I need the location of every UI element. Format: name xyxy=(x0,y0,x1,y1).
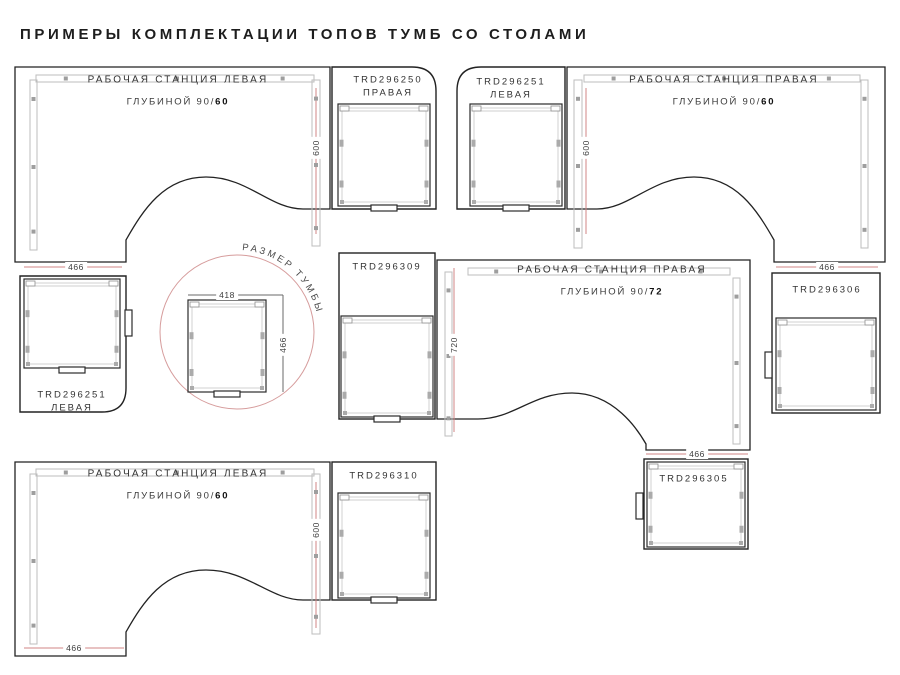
rail-bracket-mark xyxy=(576,97,580,101)
cabinet-code-trd296309: TRD296309 xyxy=(352,262,421,273)
cabinet-header-cap xyxy=(255,302,264,307)
cabinet-corner-mark xyxy=(472,200,476,204)
cabinet-top-outline xyxy=(776,318,876,410)
cabinet-hinge-mark xyxy=(740,492,744,499)
dim-600-top-left: 600 xyxy=(311,137,321,159)
rail-bracket-mark xyxy=(314,554,318,558)
cabinet-hinge-mark xyxy=(778,387,782,394)
rail-bracket-mark xyxy=(576,164,580,168)
rail-bracket-mark xyxy=(447,288,451,292)
cabinet-hinge-mark xyxy=(115,346,119,353)
cabinet-notch xyxy=(371,205,397,211)
cabinet-hinge-mark xyxy=(425,572,429,579)
cabinet-side-trd296250: ПРАВАЯ xyxy=(363,88,413,99)
cabinet-header-cap xyxy=(419,495,428,500)
rail-bracket-mark xyxy=(863,228,867,232)
cabinet-side-trd296251-left: ЛЕВАЯ xyxy=(51,403,93,414)
cabinet-top-outline xyxy=(24,279,120,368)
rail-bracket-mark xyxy=(314,615,318,619)
dim-466-top-left: 466 xyxy=(65,262,87,272)
rail-bracket-mark xyxy=(863,97,867,101)
depth-prefix: ГЛУБИНОЙ 90/ xyxy=(673,97,761,108)
page-title: ПРИМЕРЫ КОМПЛЕКТАЦИИ ТОПОВ ТУМБ СО СТОЛА… xyxy=(20,26,589,43)
depth-value: 60 xyxy=(215,491,229,502)
depth-label-top-right: ГЛУБИНОЙ 90/60 xyxy=(673,97,776,108)
cabinet-notch xyxy=(214,391,240,397)
cabinet-code-trd296251-right: TRD296251 xyxy=(476,77,545,88)
station-label-top-left: РАБОЧАЯ СТАНЦИЯ ЛЕВАЯ xyxy=(88,75,269,86)
rail-bracket-mark xyxy=(32,491,36,495)
cabinet-hinge-mark xyxy=(340,572,344,579)
cabinet-code-trd296305: TRD296305 xyxy=(659,474,728,485)
cabinet-handle-tab xyxy=(125,310,132,336)
cabinet-notch xyxy=(371,597,397,603)
cabinet-hinge-mark xyxy=(472,181,476,188)
cabinet-code-trd296251-left: TRD296251 xyxy=(37,390,106,401)
cabinet-handle-tab xyxy=(765,352,772,378)
cabinet-top-outline xyxy=(338,493,430,598)
cabinet-hinge-mark xyxy=(190,369,194,376)
dim-600-top-right: 600 xyxy=(581,137,591,159)
cabinet-code-trd296310: TRD296310 xyxy=(349,471,418,482)
cabinet-top-outline xyxy=(338,104,430,206)
cabinet-hinge-mark xyxy=(428,351,432,358)
dim-600-bottom-left: 600 xyxy=(311,519,321,541)
rail-bracket-mark xyxy=(32,230,36,234)
cabinet-notch xyxy=(374,416,400,422)
cabinet-hinge-mark xyxy=(340,181,344,188)
dim-466-top-right: 466 xyxy=(816,262,838,272)
cabinet-hinge-mark xyxy=(115,310,119,317)
cabinet-corner-mark xyxy=(739,541,743,545)
cabinet-header-cap xyxy=(778,320,787,325)
cabinet-header-cap xyxy=(340,106,349,111)
cabinet-hinge-mark xyxy=(557,181,561,188)
cabinet-hinge-mark xyxy=(343,351,347,358)
depth-label-middle-right: ГЛУБИНОЙ 90/72 xyxy=(561,287,664,298)
rail-bracket-mark xyxy=(314,226,318,230)
rail-bracket-mark xyxy=(32,97,36,101)
dim-418-cabinet-width: 418 xyxy=(216,290,238,300)
rail-bracket-mark xyxy=(494,270,498,274)
dim-466-bottom-left: 466 xyxy=(63,643,85,653)
cabinet-corner-mark xyxy=(424,200,428,204)
station-label-middle-right: РАБОЧАЯ СТАНЦИЯ ПРАВАЯ xyxy=(517,265,707,276)
cabinet-corner-mark xyxy=(343,411,347,415)
cabinet-hinge-mark xyxy=(871,387,875,394)
depth-label-top-left: ГЛУБИНОЙ 90/60 xyxy=(127,97,230,108)
rail-bracket-mark xyxy=(576,228,580,232)
rail-bracket-mark xyxy=(827,77,831,81)
cabinet-header-cap xyxy=(551,106,560,111)
cabinet-corner-mark xyxy=(340,200,344,204)
cabinet-hinge-mark xyxy=(740,526,744,533)
station-label-top-right: РАБОЧАЯ СТАНЦИЯ ПРАВАЯ xyxy=(629,75,819,86)
cabinet-header-cap xyxy=(734,464,743,469)
cabinet-hinge-mark xyxy=(340,140,344,147)
cabinet-top-outline xyxy=(470,104,562,206)
rail-bracket-mark xyxy=(314,163,318,167)
rail-bracket-mark xyxy=(32,559,36,563)
rail-bracket-mark xyxy=(735,424,739,428)
cabinet-hinge-mark xyxy=(425,140,429,147)
rail-bracket-mark xyxy=(612,77,616,81)
cabinet-corner-mark xyxy=(340,592,344,596)
cabinet-header-cap xyxy=(343,318,352,323)
cabinet-header-cap xyxy=(190,302,199,307)
cabinet-corner-mark xyxy=(190,386,194,390)
cabinet-notch xyxy=(59,367,85,373)
dim-466-cabinet-depth: 466 xyxy=(278,334,288,356)
cabinet-code-trd296250: TRD296250 xyxy=(353,75,422,86)
cabinet-corner-mark xyxy=(427,411,431,415)
cabinet-corner-mark xyxy=(26,362,30,366)
cabinet-hinge-mark xyxy=(425,530,429,537)
rail-bracket-mark xyxy=(314,490,318,494)
rail-bracket-mark xyxy=(281,77,285,81)
cabinet-header-cap xyxy=(419,106,428,111)
rail-bracket-mark xyxy=(32,165,36,169)
depth-prefix: ГЛУБИНОЙ 90/ xyxy=(127,97,215,108)
rail-bracket-mark xyxy=(447,416,451,420)
rail-bracket-mark xyxy=(32,624,36,628)
cabinet-header-cap xyxy=(109,281,118,286)
cabinet-hinge-mark xyxy=(425,181,429,188)
cabinet-header-cap xyxy=(340,495,349,500)
depth-value: 60 xyxy=(215,97,229,108)
cabinet-corner-mark xyxy=(870,404,874,408)
station-label-bottom-left: РАБОЧАЯ СТАНЦИЯ ЛЕВАЯ xyxy=(88,469,269,480)
cabinet-hinge-mark xyxy=(428,392,432,399)
drawing-canvas: РАЗМЕР ТУМБЫ ПРИМЕРЫ КОМПЛЕКТАЦИИ ТОПОВ … xyxy=(0,0,900,675)
depth-label-bottom-left: ГЛУБИНОЙ 90/60 xyxy=(127,491,230,502)
cabinet-corner-mark xyxy=(424,592,428,596)
cabinet-hinge-mark xyxy=(472,140,476,147)
cabinet-hinge-mark xyxy=(778,350,782,357)
cabinet-side-trd296251-right: ЛЕВАЯ xyxy=(490,90,532,101)
cabinet-corner-mark xyxy=(649,541,653,545)
cabinet-corner-mark xyxy=(114,362,118,366)
dim-720-middle: 720 xyxy=(449,334,459,356)
cabinet-header-cap xyxy=(26,281,35,286)
rail-bracket-mark xyxy=(64,77,68,81)
depth-value: 72 xyxy=(649,287,663,298)
cabinet-hinge-mark xyxy=(649,526,653,533)
cabinet-hinge-mark xyxy=(26,346,30,353)
cabinet-hinge-mark xyxy=(261,369,265,376)
cabinet-header-cap xyxy=(472,106,481,111)
cabinet-notch xyxy=(503,205,529,211)
cabinet-hinge-mark xyxy=(26,310,30,317)
dim-466-middle: 466 xyxy=(686,449,708,459)
cabinet-handle-tab xyxy=(636,493,643,519)
cabinet-header-cap xyxy=(649,464,658,469)
cabinet-header-cap xyxy=(865,320,874,325)
rail-bracket-mark xyxy=(735,361,739,365)
depth-prefix: ГЛУБИНОЙ 90/ xyxy=(561,287,649,298)
cabinet-hinge-mark xyxy=(557,140,561,147)
depth-value: 60 xyxy=(761,97,775,108)
rail-bracket-mark xyxy=(64,471,68,475)
cabinet-top-outline xyxy=(341,316,433,417)
rail-bracket-mark xyxy=(735,295,739,299)
cabinet-hinge-mark xyxy=(190,332,194,339)
cabinet-hinge-mark xyxy=(340,530,344,537)
cabinet-code-trd296306: TRD296306 xyxy=(792,285,861,296)
cabinet-corner-mark xyxy=(778,404,782,408)
cabinet-hinge-mark xyxy=(649,492,653,499)
cabinet-hinge-mark xyxy=(343,392,347,399)
cabinet-header-cap xyxy=(422,318,431,323)
depth-prefix: ГЛУБИНОЙ 90/ xyxy=(127,491,215,502)
cabinet-hinge-mark xyxy=(871,350,875,357)
cabinet-top-outline xyxy=(188,300,266,392)
cabinet-corner-mark xyxy=(556,200,560,204)
rail-bracket-mark xyxy=(281,471,285,475)
rail-bracket-mark xyxy=(314,97,318,101)
rail-bracket-mark xyxy=(863,164,867,168)
cabinet-corner-mark xyxy=(260,386,264,390)
cabinet-hinge-mark xyxy=(261,332,265,339)
